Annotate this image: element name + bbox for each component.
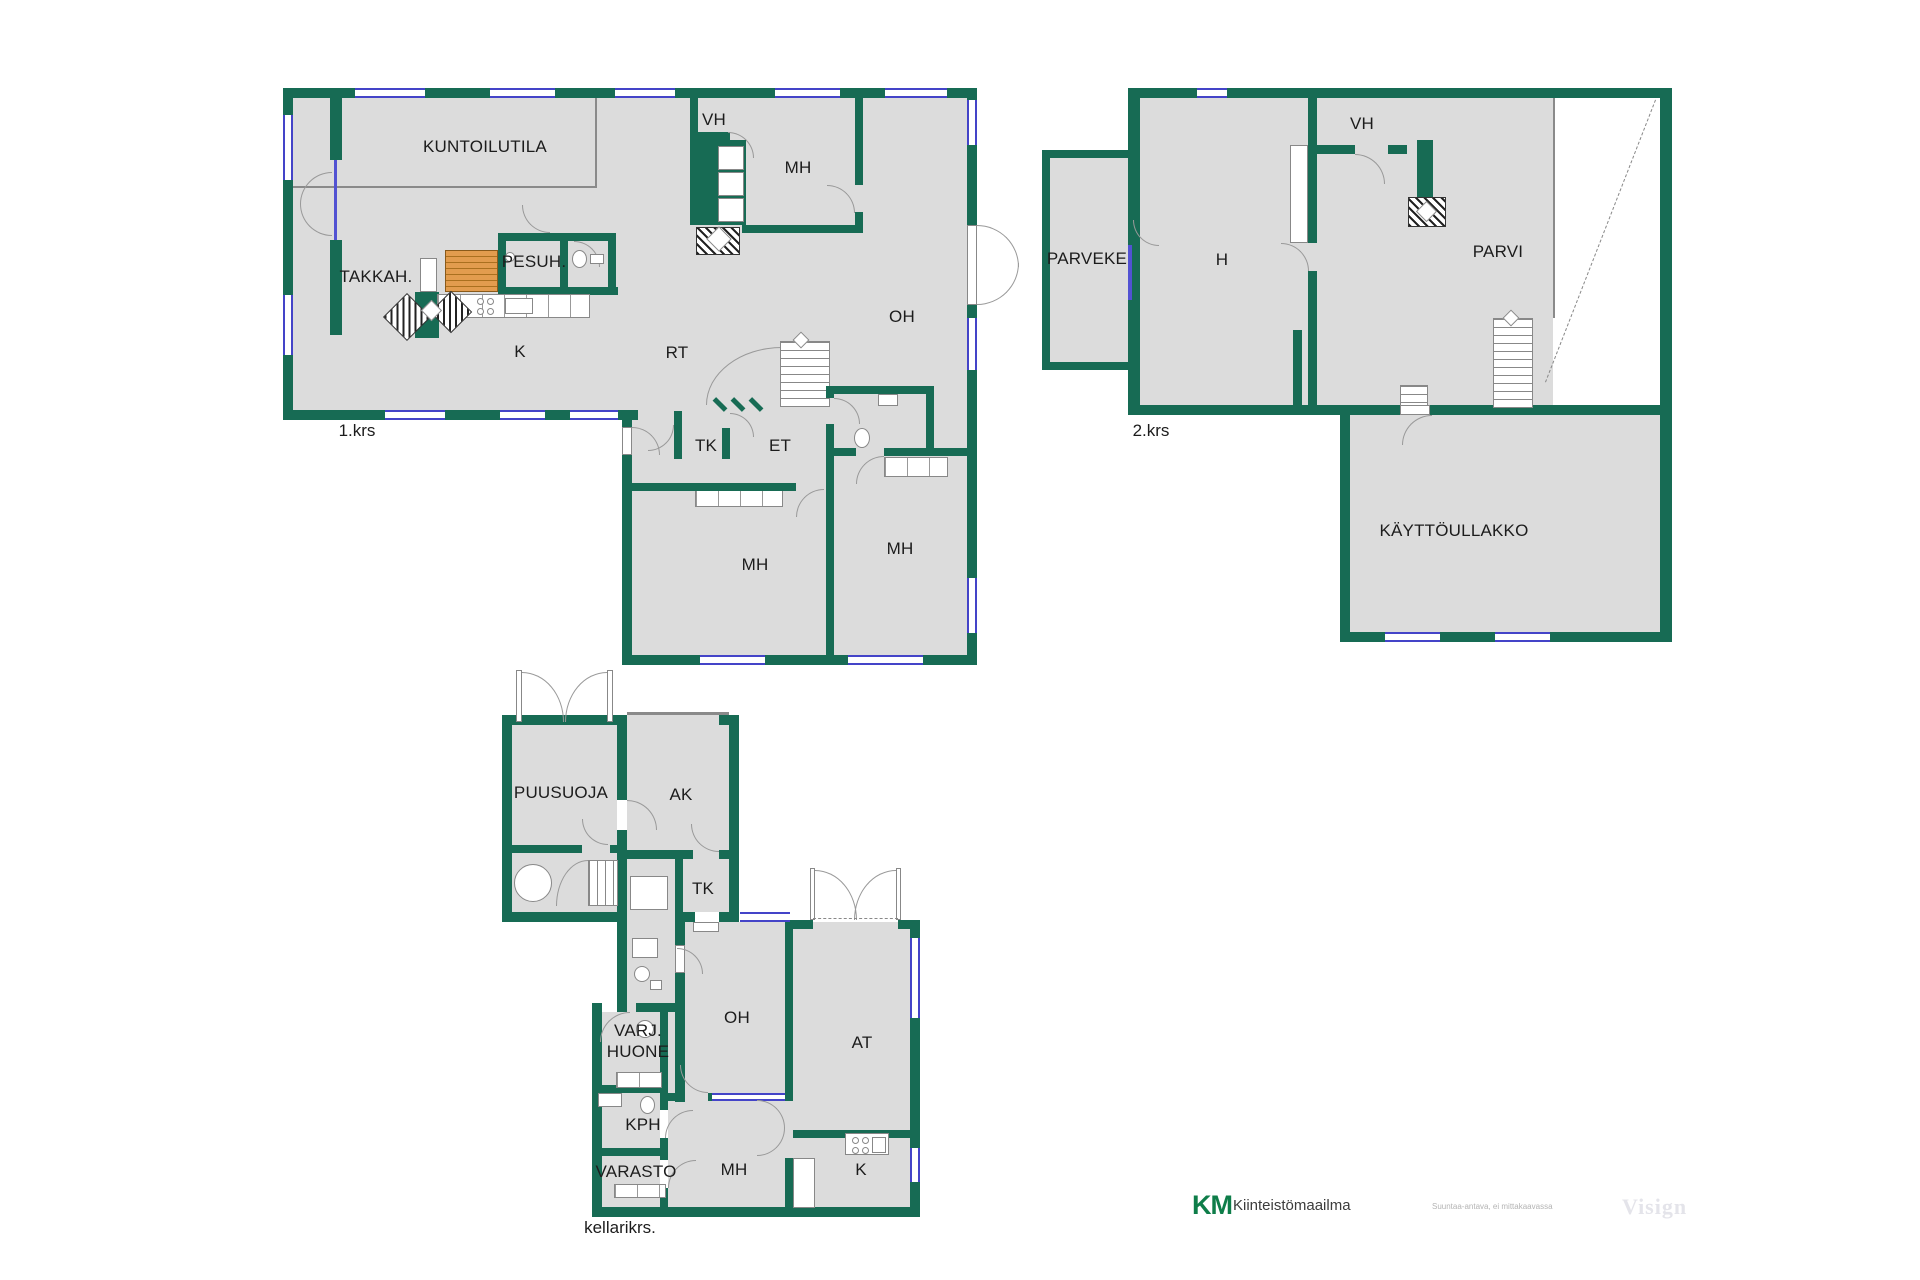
room-label-puusuoja: PUUSUOJA (514, 783, 608, 803)
disclaimer-text: Suuntaa-antava, ei mittakaavassa (1432, 1202, 1553, 1211)
room-label-kayttoullakko: KÄYTTÖULLAKKO (1379, 521, 1528, 541)
visign-watermark: Visign (1622, 1194, 1687, 1220)
room-label-oh-basement: OH (724, 1008, 750, 1028)
room-label-mh-top-f1: MH (785, 158, 812, 178)
floor-label-1krs: 1.krs (339, 421, 376, 441)
room-label-at: AT (852, 1033, 873, 1053)
room-label-pesuh: PESUH. (502, 252, 567, 272)
room-label-oh-f1: OH (889, 307, 915, 327)
room-label-mh-basement: MH (721, 1160, 748, 1180)
labels-layer: KUNTOILUTILA VH MH TAKKAH. PESUH. K RT O… (0, 0, 1920, 1280)
room-label-h: H (1216, 250, 1228, 270)
room-label-k-f1: K (514, 342, 526, 362)
room-label-parvi: PARVI (1473, 242, 1523, 262)
room-label-vh-f1: VH (702, 110, 726, 130)
room-label-varasto: VARASTO (595, 1162, 676, 1182)
room-label-mh-right-f1: MH (887, 539, 914, 559)
km-logo-text: Kiinteistömaailma (1233, 1197, 1351, 1214)
room-label-kph: KPH (625, 1115, 661, 1135)
km-logo-icon: KM (1192, 1190, 1232, 1221)
room-label-mh-left-f1: MH (742, 555, 769, 575)
room-label-parveke: PARVEKE (1047, 249, 1127, 269)
room-label-kuntoilutila: KUNTOILUTILA (423, 137, 547, 157)
room-label-et: ET (769, 436, 791, 456)
floor-label-kellarikrs: kellarikrs. (584, 1218, 656, 1238)
room-label-tk-f1: TK (695, 436, 717, 456)
room-label-varj-line1: VARJ. (614, 1021, 662, 1041)
room-label-varj-line2: HUONE (607, 1042, 669, 1062)
room-label-tk-basement: TK (692, 879, 714, 899)
room-label-rt: RT (666, 343, 689, 363)
room-label-k-basement: K (855, 1160, 867, 1180)
room-label-ak: AK (669, 785, 692, 805)
floorplan-canvas: KUNTOILUTILA VH MH TAKKAH. PESUH. K RT O… (0, 0, 1920, 1280)
room-label-vh-f2: VH (1350, 114, 1374, 134)
room-label-takkah: TAKKAH. (340, 267, 413, 287)
floor-label-2krs: 2.krs (1133, 421, 1170, 441)
